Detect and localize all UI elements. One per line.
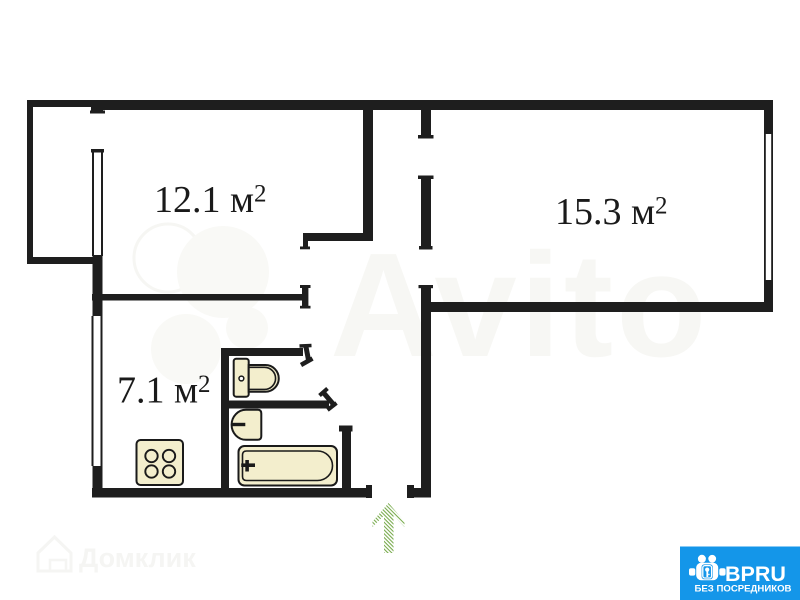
svg-text:15.3 м2: 15.3 м2 bbox=[555, 191, 668, 233]
svg-text:БЕЗ ПОСРЕДНИКОВ: БЕЗ ПОСРЕДНИКОВ bbox=[695, 584, 792, 595]
svg-text:Домклик: Домклик bbox=[79, 543, 196, 573]
svg-text:12.1 м2: 12.1 м2 bbox=[154, 179, 267, 221]
svg-text:7.1 м2: 7.1 м2 bbox=[117, 370, 211, 412]
svg-text:BPRU: BPRU bbox=[725, 562, 786, 586]
